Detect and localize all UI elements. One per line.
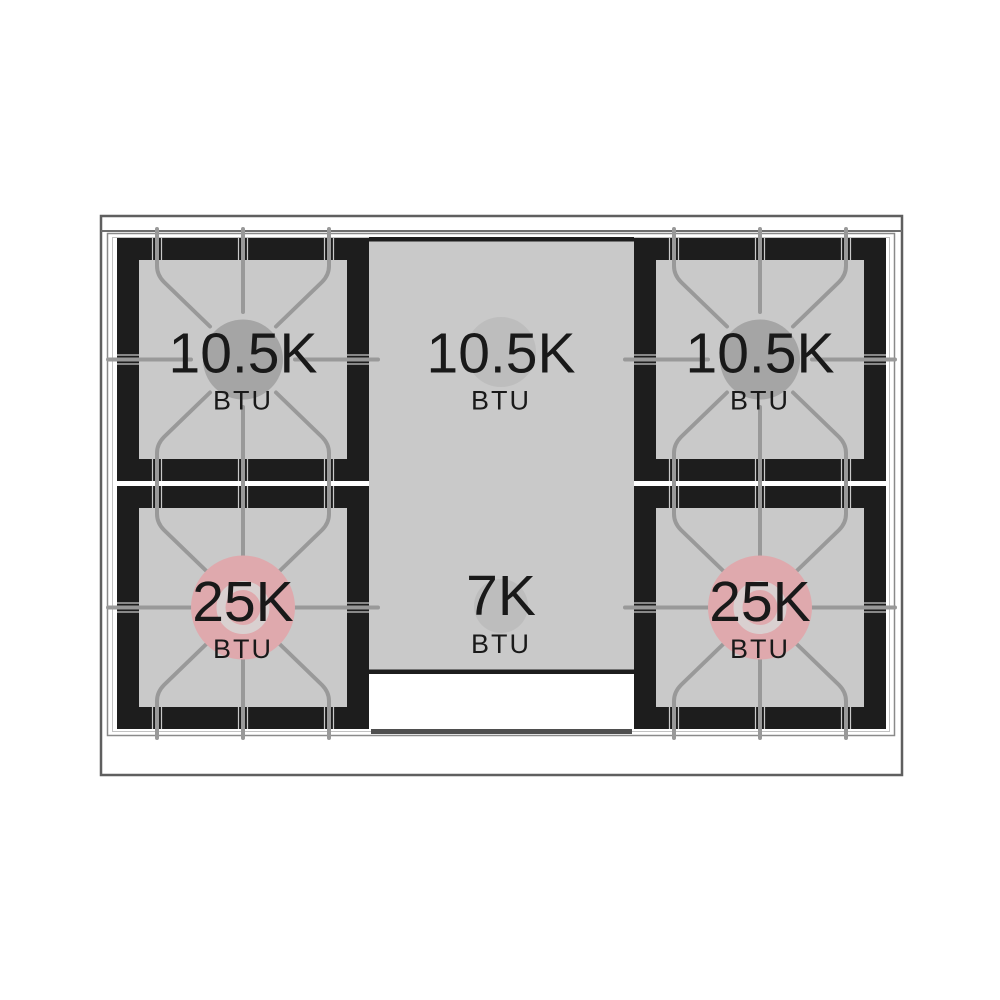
burner-label-front-center: 7K BTU <box>466 564 536 659</box>
burner-unit: BTU <box>730 386 790 416</box>
burner-value: 10.5K <box>169 322 318 386</box>
burner-unit: BTU <box>471 629 531 659</box>
burner-unit: BTU <box>471 386 531 416</box>
burner-value: 10.5K <box>427 322 576 386</box>
range-top-drawing: 10.5K BTU 10.5K BTU 10.5K BTU 25K BTU 7K… <box>0 0 1000 1000</box>
burner-unit: BTU <box>213 386 273 416</box>
burner-unit: BTU <box>213 634 273 664</box>
burner-value: 10.5K <box>686 322 835 386</box>
center-front-trim-line <box>371 729 632 734</box>
burner-value: 7K <box>466 564 536 628</box>
center-griddle-panel <box>369 237 634 734</box>
burner-value: 25K <box>192 570 293 634</box>
burner-value: 25K <box>709 570 810 634</box>
burner-unit: BTU <box>730 634 790 664</box>
cooktop-diagram: 10.5K BTU 10.5K BTU 10.5K BTU 25K BTU 7K… <box>0 0 1000 1000</box>
